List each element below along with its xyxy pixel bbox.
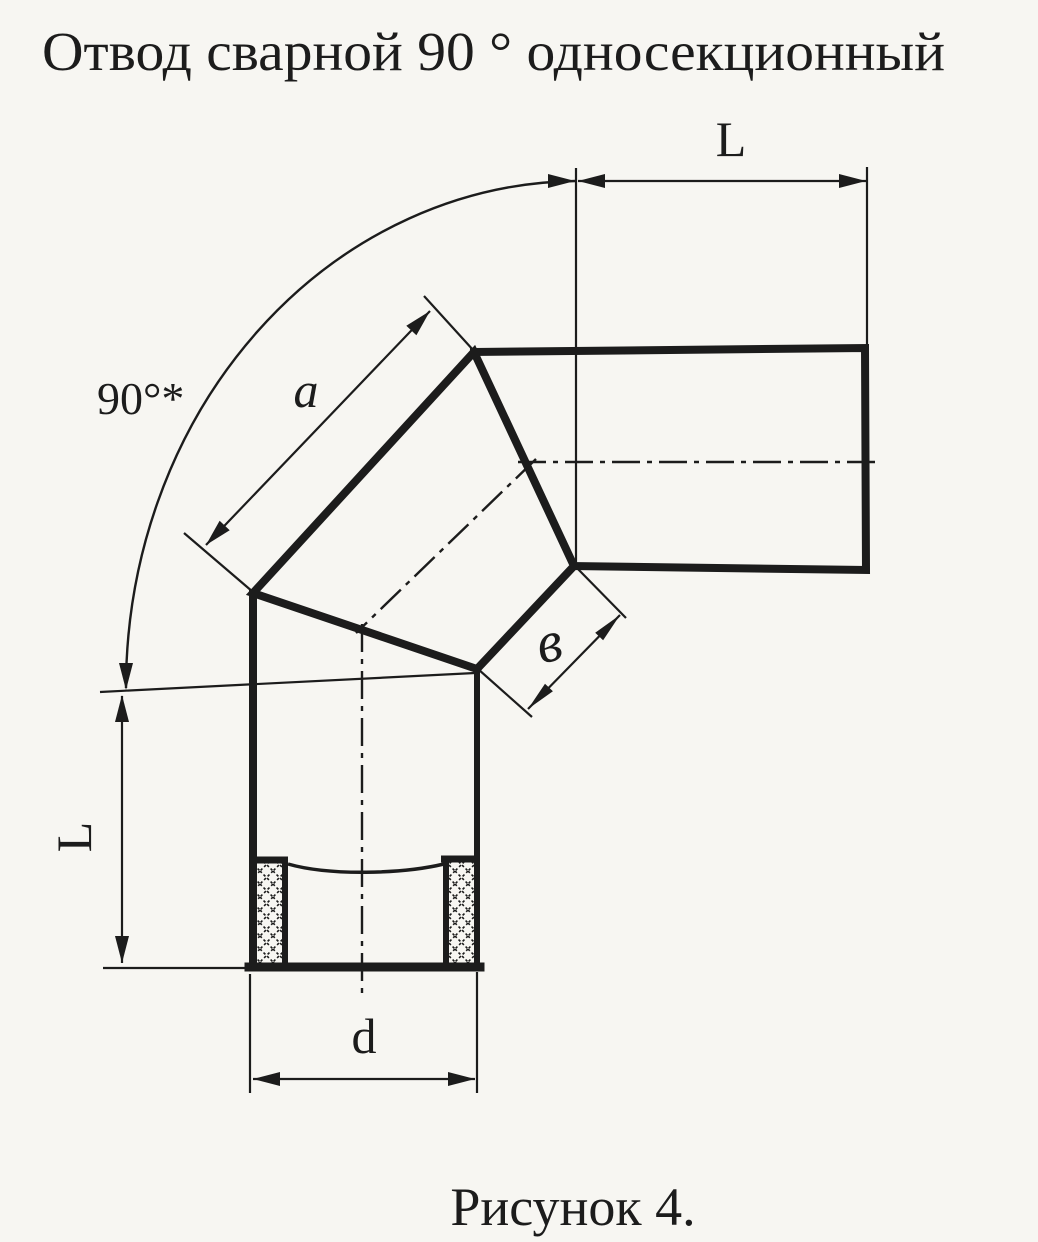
horizontal-pipe-outline (474, 348, 866, 570)
dim-arrow-left (578, 174, 605, 188)
dim-arrow-left (253, 1072, 280, 1086)
ext-tick-lower (184, 533, 253, 592)
figure-caption: Рисунок 4. (450, 1177, 695, 1237)
sleeve-back-edge-line (288, 864, 444, 872)
dimension-a: a (184, 296, 474, 592)
centerlines (356, 459, 877, 997)
label-L-top: L (716, 111, 747, 167)
label-a: a (294, 362, 319, 418)
dimension-L-top: L (576, 111, 867, 563)
sleeve-left-wall-hatch (252, 859, 285, 966)
ext-line-lower (478, 669, 532, 717)
dimension-d: d (250, 972, 477, 1093)
dim-arrow-down (115, 936, 129, 963)
ext-line-upper (575, 566, 626, 618)
angle-arc-top-arrow (548, 174, 575, 188)
dim-arrow-up (115, 695, 129, 722)
label-d: d (352, 1008, 377, 1064)
label-L-left: L (46, 822, 102, 853)
socket-sleeve (250, 858, 479, 966)
elbow-technical-drawing: Отвод сварной 90 ° односекционный (0, 0, 1038, 1242)
dim-line-a (206, 311, 430, 545)
angle-arc (126, 181, 575, 688)
drawing-title: Отвод сварной 90 ° односекционный (42, 21, 945, 82)
angle-arc-bottom-arrow (119, 663, 133, 690)
angle-dimension: 90°* (97, 174, 575, 690)
drawing-sheet: Отвод сварной 90 ° односекционный (0, 0, 1038, 1242)
label-v: в (530, 608, 568, 677)
dim-arrow-right (839, 174, 866, 188)
ext-line-joint-level (100, 673, 475, 692)
ext-tick-upper (424, 296, 474, 351)
middle-section-centerline (356, 459, 536, 633)
angle-label: 90°* (97, 373, 184, 424)
dim-arrow-right (448, 1072, 475, 1086)
